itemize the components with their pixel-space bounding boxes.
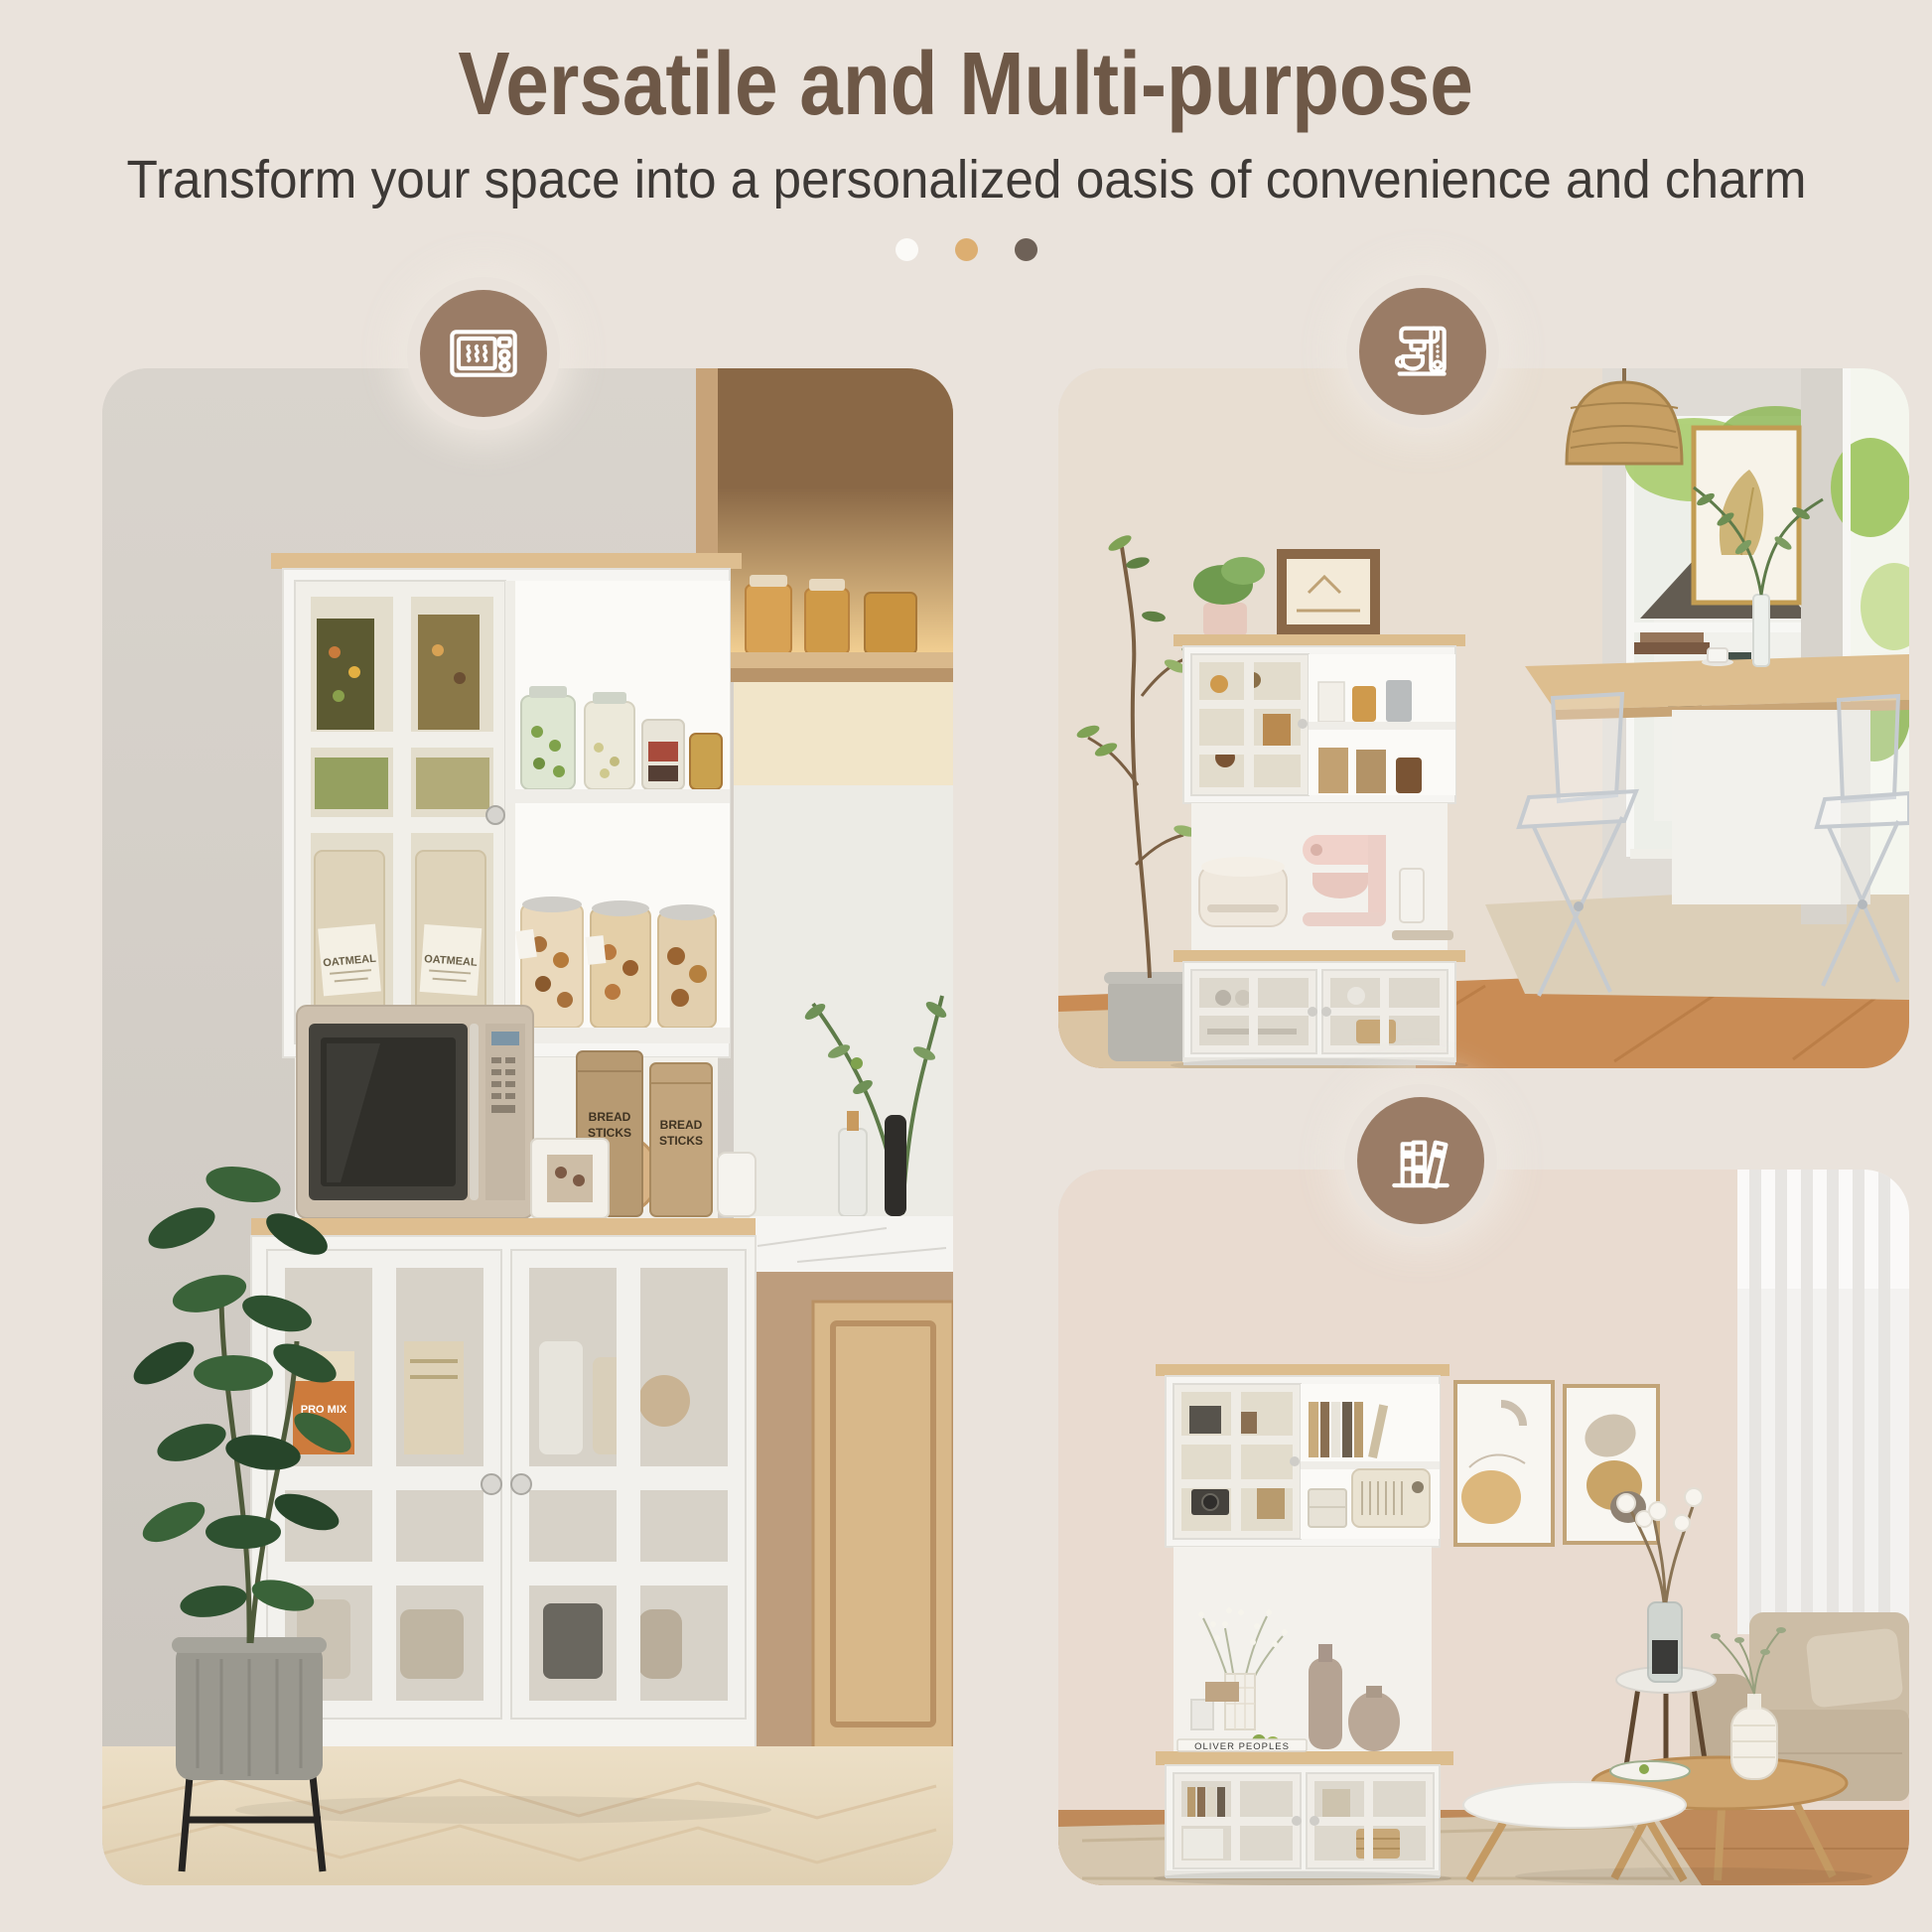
jar-pickles <box>521 686 575 789</box>
microwave-handle <box>470 1024 479 1200</box>
jar-cookies <box>658 904 716 1028</box>
coffee-machine-badge <box>1359 288 1486 415</box>
decor-tin <box>531 1139 609 1218</box>
books-badge <box>1357 1097 1484 1224</box>
base-glass-door-right <box>1307 1773 1434 1868</box>
carousel-dot-1 <box>896 238 918 261</box>
glass-cup <box>1191 1700 1213 1729</box>
coffee-table-book: OLIVER PEOPLES <box>1177 1739 1307 1752</box>
carousel-dot-3 <box>1015 238 1037 261</box>
base-glass-door-right <box>1322 970 1448 1053</box>
microwave <box>297 1006 533 1218</box>
bread-label-1b: STICKS <box>588 1126 631 1140</box>
oak-open-shelf <box>696 368 953 682</box>
photo-living-room: OLIVER PEOPLES <box>1058 1170 1909 1885</box>
open-shelves-upper <box>1301 1384 1440 1539</box>
storage-box <box>1309 1489 1346 1527</box>
base-glass-door-right <box>511 1250 746 1719</box>
jar-snacks <box>586 900 650 1028</box>
base-knob-right <box>511 1474 531 1494</box>
sheer-curtain <box>1737 1170 1909 1634</box>
page-subtitle-text: Transform your space into a personalized… <box>126 149 1806 210</box>
glass-door-upper <box>1173 1384 1301 1539</box>
dessert-plate <box>1610 1761 1690 1781</box>
hutch-oak-top <box>1173 634 1465 646</box>
carousel-dot-2 <box>955 238 978 261</box>
jar-spices <box>642 720 684 789</box>
kitchen-pantry-scene: OATMEAL OATMEAL <box>102 368 953 1885</box>
page-title: Versatile and Multi-purpose <box>0 34 1932 136</box>
rice-cooker <box>1199 857 1287 926</box>
white-table-top <box>1463 1782 1686 1828</box>
hutch-oak-top <box>1156 1364 1449 1376</box>
bread-label-2b: STICKS <box>659 1134 703 1148</box>
glass-door-upper: OATMEAL OATMEAL <box>295 581 505 1043</box>
bread-label-2a: BREAD <box>660 1118 703 1132</box>
jar-seeds <box>585 692 634 789</box>
photo-kitchen-pantry: OATMEAL OATMEAL <box>102 368 953 1885</box>
microwave-icon <box>444 314 523 393</box>
gift-box <box>1205 1682 1239 1702</box>
photo-coffee-dining <box>1058 368 1909 1068</box>
microwave-badge <box>420 290 547 417</box>
ceramic-jar <box>718 1153 756 1216</box>
oatmeal-jar-2: OATMEAL <box>416 851 485 1020</box>
marble-countertop <box>750 1216 953 1272</box>
hutch-counter <box>1156 1751 1453 1765</box>
open-shelves-upper <box>1309 654 1455 795</box>
books-on-table <box>1634 642 1710 654</box>
vintage-radio <box>1352 1469 1430 1527</box>
wicker-basket <box>1356 1829 1400 1859</box>
hutch-oak-top <box>271 553 742 569</box>
abstract-frame-1 <box>1455 1382 1553 1545</box>
hutch-counter <box>251 1218 756 1236</box>
open-shelves-upper <box>505 581 730 1043</box>
carousel-dots <box>0 238 1932 261</box>
dispenser <box>1400 869 1424 922</box>
base-glass-door-left <box>1173 1773 1301 1868</box>
pepper-grinder <box>885 1115 906 1216</box>
hutch-counter <box>1173 950 1465 962</box>
door-knob <box>486 806 504 824</box>
page-subtitle: Transform your space into a personalized… <box>0 149 1932 210</box>
oliver-peoples-label: OLIVER PEOPLES <box>1194 1741 1290 1752</box>
coffee-machine-icon <box>1383 312 1462 391</box>
bookcase-hutch: OLIVER PEOPLES <box>1156 1364 1453 1878</box>
base-knob-left <box>482 1474 501 1494</box>
bread-sticks-bag-2: BREAD STICKS <box>650 1063 712 1216</box>
under-shelf-glow <box>734 666 953 785</box>
oatmeal-jar: OATMEAL <box>315 851 384 1020</box>
stand-mixer <box>1303 835 1386 926</box>
page-title-text: Versatile and Multi-purpose <box>459 34 1473 136</box>
base-glass-door-left <box>1191 970 1316 1053</box>
coffee-dining-scene <box>1058 368 1909 1068</box>
serving-tray <box>1392 930 1453 940</box>
living-room-scene: OLIVER PEOPLES <box>1058 1170 1909 1885</box>
glass-bottle <box>839 1129 867 1216</box>
glass-door-upper <box>1191 654 1309 795</box>
bread-label-1a: BREAD <box>589 1110 631 1124</box>
framed-art <box>1694 428 1799 603</box>
books-icon <box>1381 1121 1460 1200</box>
cereal-box <box>317 619 374 730</box>
camera <box>1191 1489 1229 1515</box>
